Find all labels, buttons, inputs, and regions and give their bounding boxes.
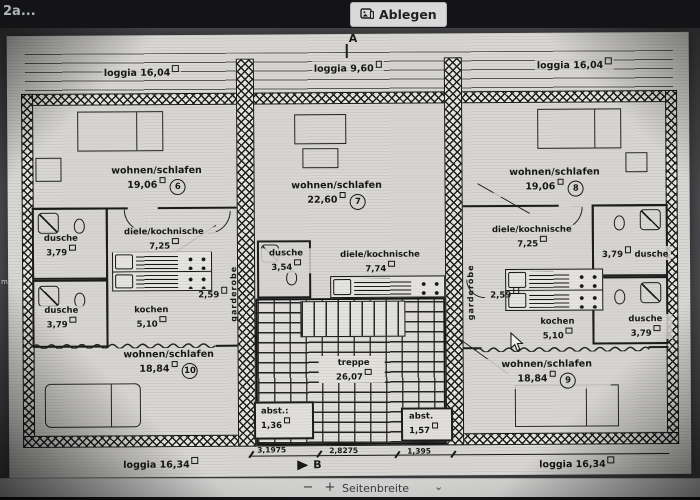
sqm-symbol xyxy=(69,244,76,251)
top-app-bar: 2a... Ablegen xyxy=(0,0,700,28)
furniture-table xyxy=(302,148,338,168)
sqm-symbol xyxy=(192,457,199,464)
screen: 2a... Ablegen A xyxy=(0,0,700,500)
unit-number: 9 xyxy=(560,373,576,389)
furniture-bed xyxy=(537,108,621,149)
sqm-symbol xyxy=(376,61,383,68)
room-label-dusche: dusche3,79 xyxy=(34,234,88,259)
section-pointer-b xyxy=(297,460,308,470)
room-label-loggia-top-right: loggia 16,04 xyxy=(535,57,614,72)
fit-width-label[interactable]: Seitenbreite xyxy=(342,482,409,495)
room-label-diele-center: diele/kochnische7,74 xyxy=(326,249,434,274)
sqm-symbol xyxy=(513,287,520,294)
room-label-wohnen-6: wohnen/schlafen 19,066 xyxy=(95,165,217,196)
sqm-symbol xyxy=(432,422,439,429)
toilet xyxy=(74,219,85,234)
sqm-symbol xyxy=(172,65,179,72)
ablegen-label: Ablegen xyxy=(379,7,437,22)
stair-flight xyxy=(300,301,405,338)
room-label-garderobe-right: garderobe xyxy=(466,248,475,320)
drop-image-icon xyxy=(360,8,374,21)
room-label-diele-left: diele/kochnische7,25 xyxy=(112,227,216,252)
sqm-symbol xyxy=(557,179,564,186)
mouse-cursor xyxy=(510,332,524,353)
kitchen-counter xyxy=(330,275,445,298)
room-label-loggia-top-center: loggia 9,60 xyxy=(312,61,384,76)
room-label-wohnen-10: wohnen/schlafen 18,8410 xyxy=(105,349,233,380)
shower xyxy=(38,213,59,234)
zoom-toolbar: − + Seitenbreite ⌄ xyxy=(0,478,700,498)
toilet xyxy=(614,289,625,304)
party-wall-right xyxy=(444,57,464,445)
room-label-loggia-bottom-left: loggia 16,34 xyxy=(121,457,200,472)
section-line-a xyxy=(346,44,348,58)
sqm-symbol xyxy=(365,368,372,375)
sqm-symbol xyxy=(339,192,346,199)
shower xyxy=(640,282,661,303)
shower xyxy=(640,209,661,230)
room-label-wohnen-7: wohnen/schlafen 22,607 xyxy=(276,180,398,211)
sqm-symbol xyxy=(540,235,547,242)
sqm-symbol xyxy=(159,177,166,184)
room-label-abst-right: abst.1,57 xyxy=(407,411,455,436)
room-label-kochen-left: kochen5,10 xyxy=(118,305,184,330)
chevron-down-icon[interactable]: ⌄ xyxy=(434,480,443,493)
unit-number: 10 xyxy=(182,363,198,379)
dim-garderobe-right: 2,59 xyxy=(488,287,522,301)
sqm-symbol xyxy=(625,246,632,253)
furniture-bed xyxy=(77,111,163,152)
section-marker-a: A xyxy=(349,32,358,45)
unit-number: 6 xyxy=(170,179,186,195)
room-label-diele-right: diele/kochnische7,25 xyxy=(478,225,586,250)
furniture-table xyxy=(35,158,61,182)
sqm-symbol xyxy=(388,260,395,267)
unit-number: 8 xyxy=(568,181,584,197)
zoom-in-button[interactable]: + xyxy=(322,480,338,495)
dimension-tick xyxy=(248,451,254,458)
floorplan-paper: A xyxy=(7,32,692,478)
dimension-tick xyxy=(316,450,322,457)
furniture-sofa xyxy=(45,383,141,428)
room-label-dusche: dusche3,79 xyxy=(34,306,88,331)
partition xyxy=(463,205,559,208)
sqm-symbol xyxy=(221,287,228,294)
room-label-dusche-right: 3,79 dusche xyxy=(600,246,671,261)
document-viewport[interactable]: A xyxy=(0,28,700,478)
furniture-bed xyxy=(294,114,346,144)
toilet xyxy=(614,215,625,230)
room-label-treppe: treppe26,07 xyxy=(321,358,387,383)
dimension-value: 1,395 xyxy=(407,447,431,456)
sqm-symbol xyxy=(654,325,661,332)
folding-partition xyxy=(475,346,653,352)
section-marker-b: B xyxy=(313,458,321,471)
room-label-wohnen-9: wohnen/schlafen 18,849 xyxy=(483,358,611,389)
dimension-value: 3,1975 xyxy=(257,445,286,454)
kitchen-counter xyxy=(112,251,212,292)
room-label-dusche-center: dusche3,54 xyxy=(260,248,312,273)
furniture-table xyxy=(625,152,647,172)
room-label-abst-left: abst.:1,36 xyxy=(259,406,313,431)
dimension-value: 2,8275 xyxy=(329,446,358,455)
shower xyxy=(38,286,59,307)
room-label-loggia-top-left: loggia 16,04 xyxy=(102,65,181,80)
room-label-garderobe-left: garderobe xyxy=(229,250,238,322)
room-label-kochen-right: kochen5,10 xyxy=(524,317,590,342)
unit-number: 7 xyxy=(350,194,366,210)
sqm-symbol xyxy=(608,456,615,463)
sqm-symbol xyxy=(566,327,573,334)
sqm-symbol xyxy=(605,57,612,64)
furniture-bed xyxy=(515,384,619,427)
partition xyxy=(158,207,237,209)
sqm-symbol xyxy=(70,316,77,323)
party-wall-left xyxy=(236,59,256,447)
room-label-wohnen-8: wohnen/schlafen 19,068 xyxy=(493,166,615,197)
document-title: 2a... xyxy=(3,4,36,19)
sqm-symbol xyxy=(160,316,167,323)
sqm-symbol xyxy=(284,417,291,424)
partition xyxy=(216,345,238,347)
zoom-out-button[interactable]: − xyxy=(300,480,316,495)
sqm-symbol xyxy=(294,259,301,266)
sqm-symbol xyxy=(171,361,178,368)
sqm-symbol xyxy=(549,371,556,378)
dim-garderobe-left: 2,59 xyxy=(196,287,230,301)
room-label-dusche: dusche3,79 xyxy=(618,314,672,339)
room-label-loggia-bottom-right: loggia 16,34 xyxy=(537,456,616,471)
ablegen-button[interactable]: Ablegen xyxy=(350,2,447,27)
sqm-symbol xyxy=(172,238,179,245)
edge-text-fragment: m.m xyxy=(1,278,20,286)
